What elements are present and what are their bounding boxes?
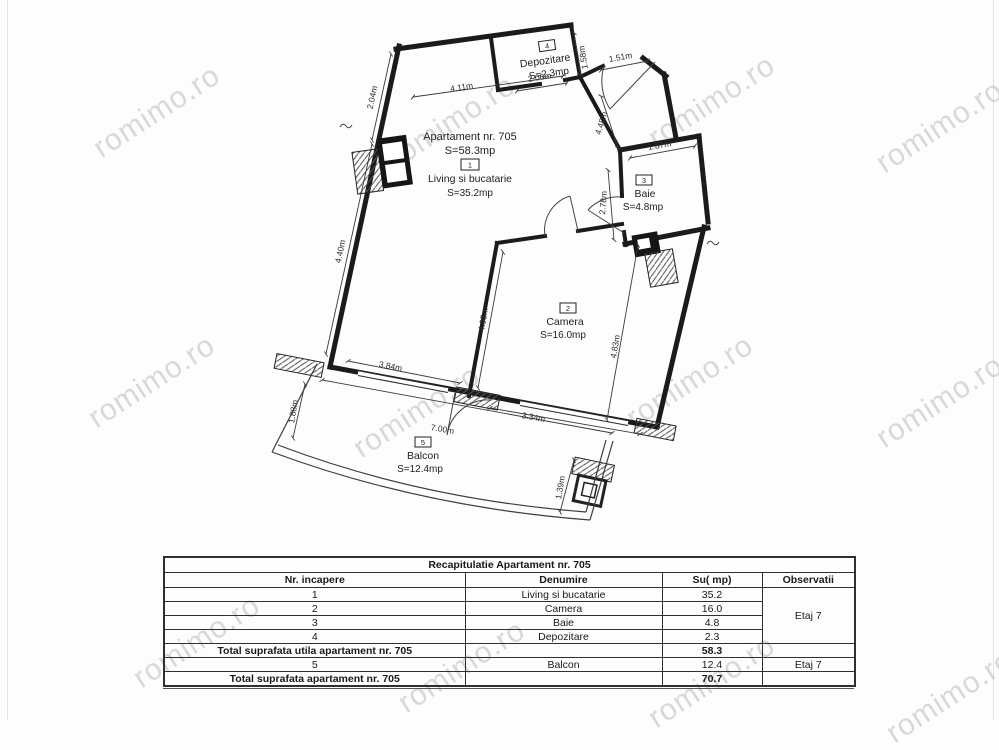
pier-bottom-mid	[454, 387, 500, 410]
room-name: Baie	[634, 188, 655, 200]
cell-su: 2.3	[662, 630, 762, 644]
cell-su: 4.8	[662, 616, 762, 630]
total-utila-label: Total suprafata utila apartament nr. 705	[164, 644, 465, 658]
total-row: Total suprafata apartament nr. 705 70.7	[164, 672, 855, 687]
dim-balcony-left: 1.88m	[286, 399, 300, 424]
room-number: 2	[566, 304, 570, 313]
cell-denumire: Living si bucatarie	[465, 588, 662, 602]
room-name: Living si bucatarie	[428, 173, 512, 185]
table-row: 2 Camera 16.0	[164, 602, 855, 616]
room-label-depozitare: 4 Depozitare S=2.3mp	[517, 38, 573, 84]
dim-divider-h: 4.95m	[476, 307, 490, 332]
recap-table: Recapitulatie Apartament nr. 705 Nr. inc…	[163, 556, 856, 687]
vent-symbol	[707, 241, 719, 245]
col-header-su: Su( mp)	[662, 573, 762, 588]
apartment-label: Apartament nr. 705 S=58.3mp	[423, 131, 517, 157]
dim-balcony-w: 7.00m	[430, 422, 455, 436]
room-number: 5	[421, 438, 425, 447]
cell-observatii-merged: Etaj 7	[762, 588, 855, 644]
room-area: S=12.4mp	[397, 464, 443, 475]
vent-symbol	[340, 124, 352, 128]
cell-observatii: Etaj 7	[762, 658, 855, 672]
dim-entry-w: 1.51m	[608, 50, 633, 64]
cell-empty	[465, 644, 662, 658]
dim-left-top: 2.04m	[365, 85, 380, 110]
total-label: Total suprafata apartament nr. 705	[164, 672, 465, 687]
col-header-denumire: Denumire	[465, 573, 662, 588]
apartment-area: S=58.3mp	[445, 145, 495, 157]
cell-nr: 5	[164, 658, 465, 672]
total-value: 70.7	[662, 672, 762, 687]
column-left-wall	[351, 135, 414, 194]
dimension-lines	[293, 33, 695, 512]
dim-camera-w: 3.34m	[521, 410, 546, 424]
room-area: S=16.0mp	[540, 330, 586, 341]
cell-nr: 3	[164, 616, 465, 630]
dim-camera-h: 4.83m	[608, 334, 622, 359]
apartment-title: Apartament nr. 705	[423, 131, 517, 143]
room-area: S=4.8mp	[623, 202, 664, 213]
table-row: 1 Living si bucatarie 35.2 Etaj 7	[164, 588, 855, 602]
cell-denumire: Camera	[465, 602, 662, 616]
table-bottom-rule	[163, 688, 854, 689]
cell-empty	[762, 672, 855, 687]
room-label-baie: 3 Baie S=4.8mp	[623, 175, 664, 213]
entry-door	[602, 62, 655, 109]
room-name: Camera	[546, 316, 584, 328]
col-header-nr: Nr. incapere	[164, 573, 465, 588]
cell-denumire: Balcon	[465, 658, 662, 672]
cell-nr: 4	[164, 630, 465, 644]
table-title: Recapitulatie Apartament nr. 705	[164, 557, 855, 573]
dim-baie-h: 2.78m	[597, 191, 609, 215]
cell-nr: 1	[164, 588, 465, 602]
dim-balcony-right: 1.39m	[553, 475, 567, 500]
room-label-living: 1 Living si bucatarie S=35.2mp	[428, 159, 512, 199]
room-area: S=35.2mp	[447, 188, 493, 199]
cell-su: 35.2	[662, 588, 762, 602]
room-label-balcon: 5 Balcon S=12.4mp	[397, 437, 443, 475]
cell-empty	[465, 672, 662, 687]
dim-left-bottom: 4.40m	[333, 239, 348, 264]
room-label-camera: 2 Camera S=16.0mp	[540, 303, 586, 341]
col-header-observatii: Observatii	[762, 573, 855, 588]
camera-door	[545, 196, 578, 236]
cell-denumire: Baie	[465, 616, 662, 630]
room-number: 3	[642, 176, 646, 185]
column-right-wall	[631, 229, 678, 289]
dim-bottom-left: 3.84m	[378, 359, 403, 373]
cell-empty	[762, 644, 855, 658]
dim-baie-w: 1.87m	[647, 138, 672, 152]
column-balcony-right	[566, 457, 614, 507]
table-row: 3 Baie 4.8	[164, 616, 855, 630]
cell-su: 16.0	[662, 602, 762, 616]
total-utila-row: Total suprafata utila apartament nr. 705…	[164, 644, 855, 658]
total-utila-value: 58.3	[662, 644, 762, 658]
dim-top-living: 4.11m	[449, 80, 473, 93]
cell-nr: 2	[164, 602, 465, 616]
table-row-balcon: 5 Balcon 12.4 Etaj 7	[164, 658, 855, 672]
cell-denumire: Depozitare	[465, 630, 662, 644]
room-name: Balcon	[407, 450, 439, 462]
room-number: 1	[468, 161, 472, 170]
pier-bottom-right	[634, 418, 676, 440]
cell-su: 12.4	[662, 658, 762, 672]
table-row: 4 Depozitare 2.3	[164, 630, 855, 644]
